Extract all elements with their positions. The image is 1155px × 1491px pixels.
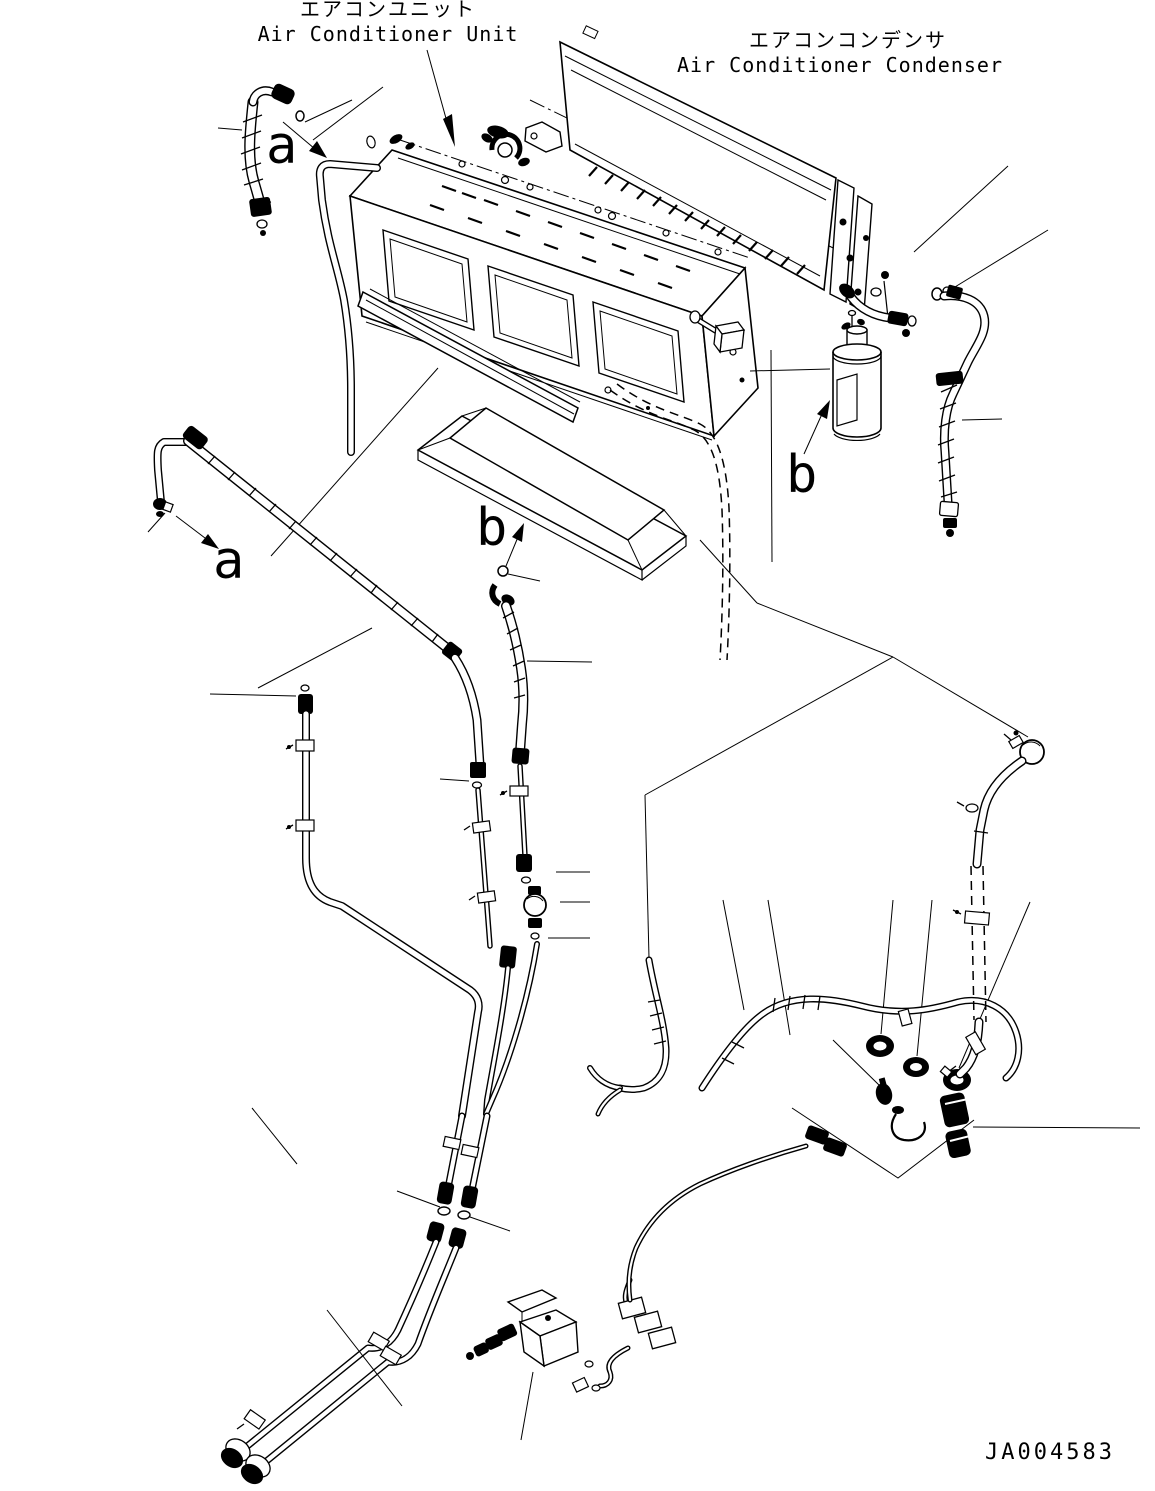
air-filter-drawing bbox=[418, 408, 686, 580]
right-wrapped-hose-drawing bbox=[932, 284, 1002, 537]
callout-a-left: a bbox=[148, 502, 244, 591]
callout-b-center-letter: b bbox=[476, 498, 507, 558]
wiring-harness-drawing bbox=[590, 900, 1140, 1300]
callout-a-left-letter: a bbox=[213, 531, 244, 591]
receiver-dryer-drawing bbox=[750, 311, 881, 441]
inlet-fitting-drawing bbox=[480, 123, 531, 167]
right-long-hose-drawing bbox=[940, 731, 1044, 1078]
harness-connector-stack-drawing bbox=[572, 1280, 675, 1392]
callout-b-right: b bbox=[786, 400, 830, 505]
service-valve-drawing bbox=[524, 886, 546, 939]
bottom-pipes-drawing bbox=[217, 1108, 510, 1488]
drawing-number: JA004583 bbox=[985, 1440, 1115, 1465]
condenser-label-jp: エアコンコンデンサ bbox=[749, 28, 947, 52]
callout-a-upper-letter: a bbox=[266, 116, 297, 176]
left-tube-drawing bbox=[210, 685, 479, 1116]
expansion-valve-drawing bbox=[466, 1290, 578, 1440]
liquid-line-hose-drawing bbox=[153, 424, 517, 1114]
center-wrapped-hose-drawing bbox=[486, 585, 592, 1114]
air-conditioner-piping-diagram: b bbox=[0, 0, 1155, 1491]
unit-label-jp: エアコンユニット bbox=[300, 0, 476, 21]
condenser-label-en: Air Conditioner Condenser bbox=[677, 53, 1003, 77]
leader-chain-lines bbox=[645, 540, 1028, 958]
callout-b-right-letter: b bbox=[786, 445, 817, 505]
parts-diagram-page: b bbox=[0, 0, 1155, 1491]
unit-label-en: Air Conditioner Unit bbox=[258, 22, 519, 46]
